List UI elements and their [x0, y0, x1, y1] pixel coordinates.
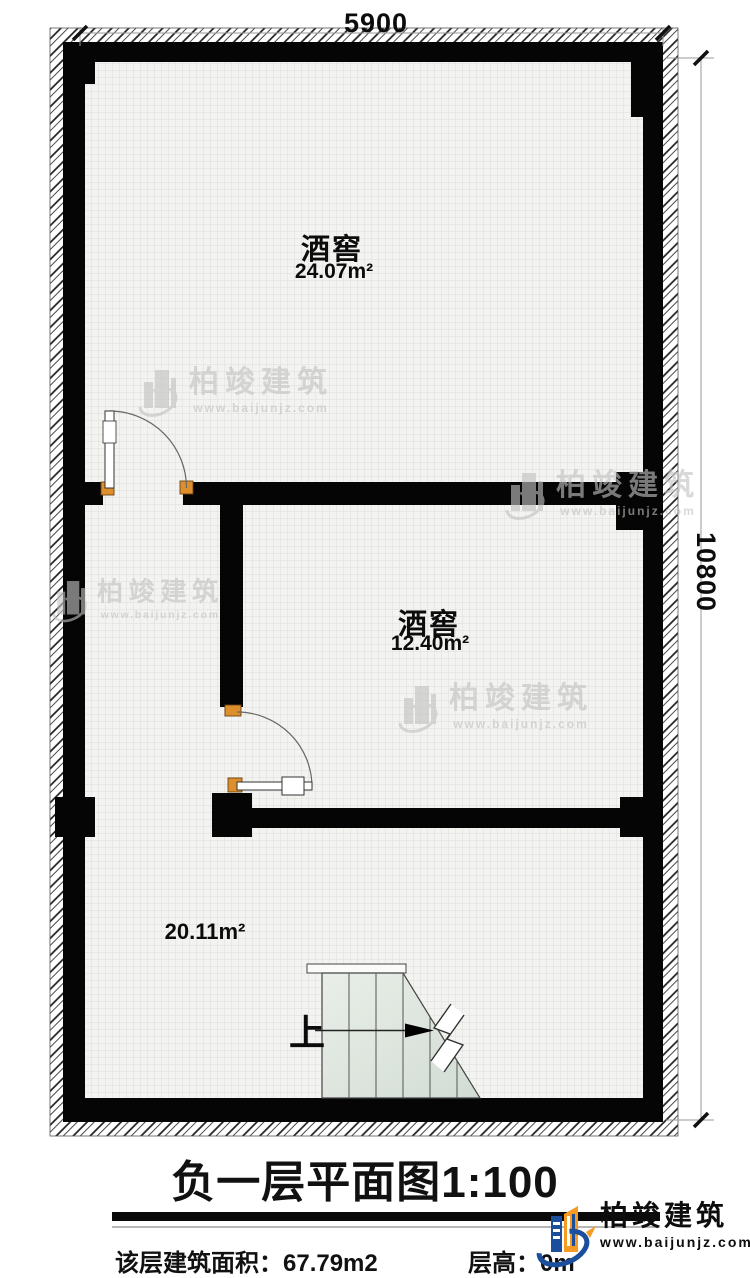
- company-logo-url: www.baijunjz.com: [600, 1235, 750, 1249]
- company-logo: 柏竣建筑 www.baijunjz.com: [536, 1202, 750, 1268]
- room-3-area: 20.11m²: [135, 919, 275, 945]
- floor-area-value: 67.79m2: [283, 1250, 378, 1277]
- room-2-area: 12.40m²: [360, 632, 500, 656]
- company-logo-name: 柏竣建筑: [600, 1202, 750, 1230]
- stairs-up-label: 上: [287, 1004, 327, 1056]
- dimension-right-label: 10800: [691, 524, 721, 620]
- drawing-title: 负一层平面图1:100: [85, 1146, 645, 1210]
- dimension-top-label: 5900: [326, 8, 426, 39]
- company-logo-icon: [536, 1202, 596, 1268]
- drawing-title-text: 负一层平面图: [171, 1158, 441, 1207]
- room-1-area: 24.07m²: [264, 260, 404, 284]
- floor-area-label: 该层建筑面积：: [115, 1250, 283, 1277]
- floor-height-label: 层高：: [468, 1250, 540, 1277]
- floor-area-info: 该层建筑面积：67.79m2: [115, 1243, 378, 1278]
- drawing-scale: 1:100: [441, 1158, 559, 1207]
